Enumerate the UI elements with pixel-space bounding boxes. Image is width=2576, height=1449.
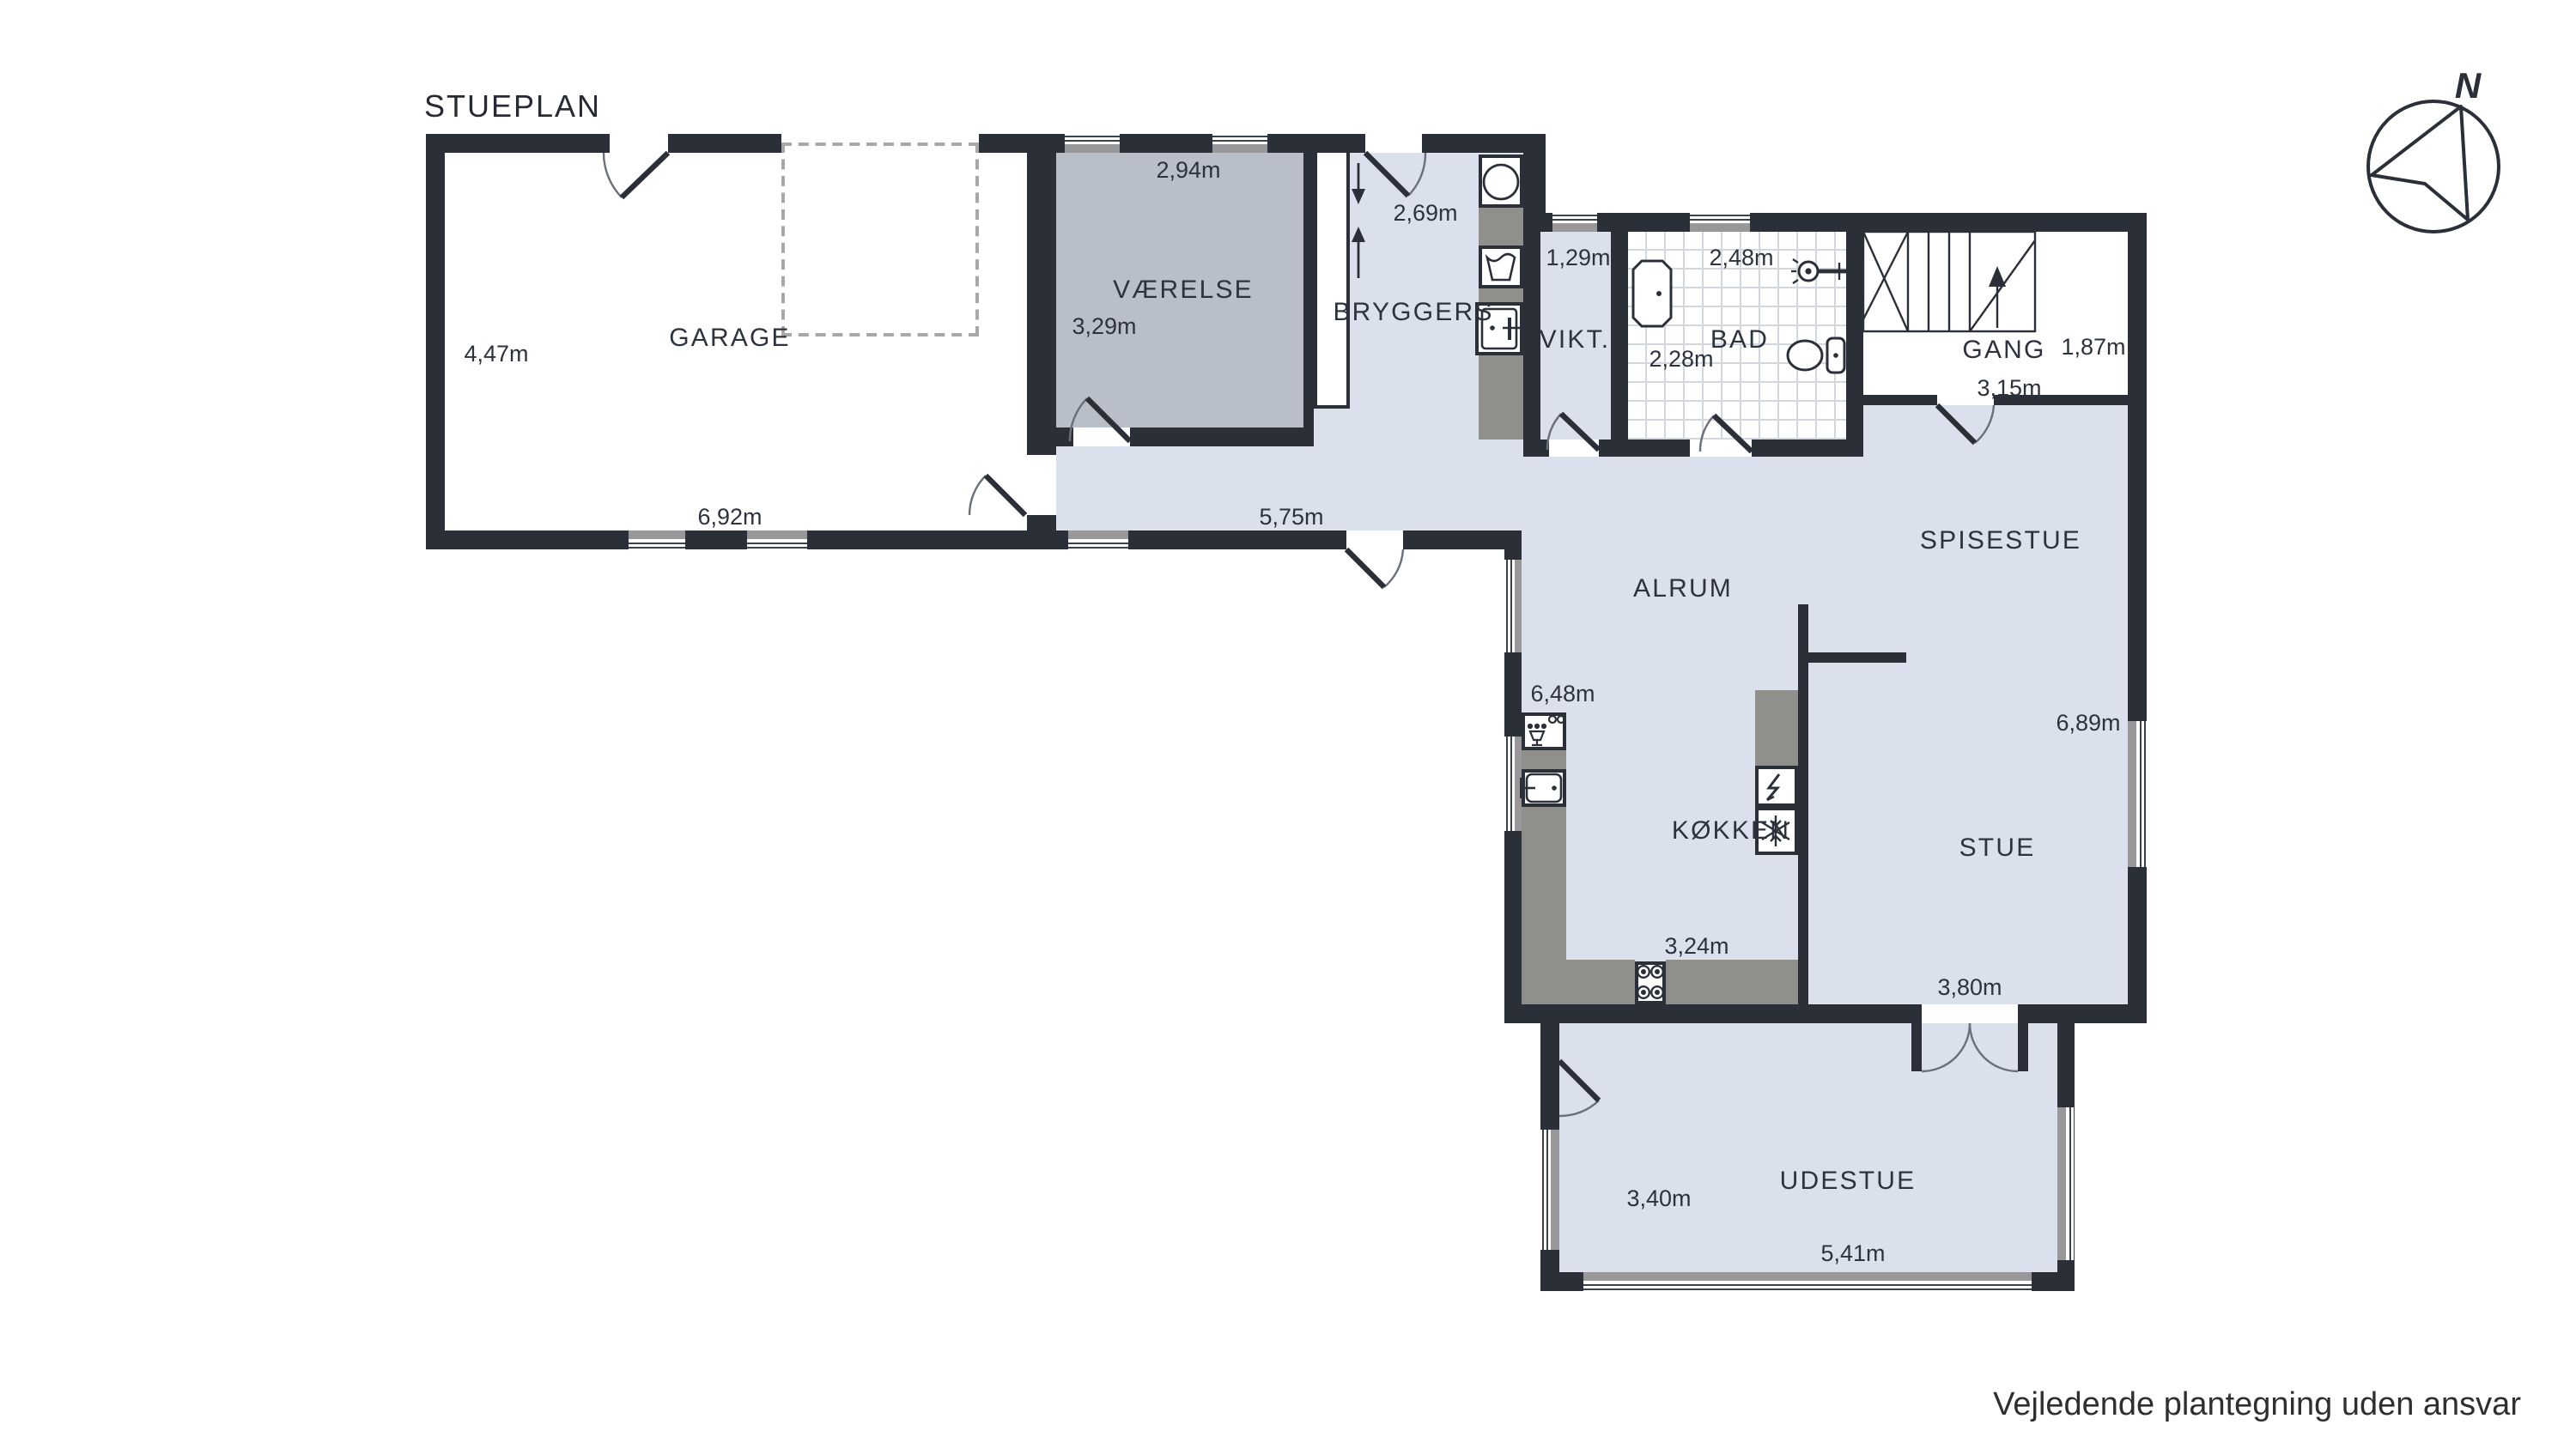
basement-stair-niche xyxy=(1314,153,1350,409)
wall-main-south xyxy=(1504,1004,2147,1023)
door-gap-vaerelse xyxy=(1073,427,1130,446)
window-vikt xyxy=(1552,213,1597,232)
room-label-alrum: ALRUM xyxy=(1633,574,1733,603)
door-gap-bryggers xyxy=(1365,134,1422,153)
wall-stub-spisestue-stue xyxy=(1808,652,1906,663)
dim-bad-height: 2,28m xyxy=(1649,346,1713,372)
window-hall xyxy=(1068,530,1128,549)
wall-vikt-right xyxy=(1611,232,1628,457)
dim-udestue-height: 3,40m xyxy=(1626,1185,1691,1211)
wall-east xyxy=(2128,213,2147,1023)
wall-koekken-stue xyxy=(1798,604,1808,1004)
dim-vaerelse-width: 2,94m xyxy=(1156,157,1220,183)
room-label-stue: STUE xyxy=(1959,834,2036,863)
dim-bryggers-width: 2,69m xyxy=(1393,200,1457,226)
bryggers-counter-3 xyxy=(1479,355,1523,440)
dim-hall-width: 5,75m xyxy=(1259,504,1323,530)
kitchen-sink xyxy=(1522,769,1566,807)
room-label-udestue: UDESTUE xyxy=(1780,1167,1917,1196)
dim-gang-height: 1,87m xyxy=(2061,334,2125,360)
dim-vaerelse-height: 3,29m xyxy=(1072,313,1136,339)
koekken-counter-2 xyxy=(1522,807,1566,960)
room-label-garage: GARAGE xyxy=(669,324,791,353)
door-gap-garage-top xyxy=(610,134,668,153)
compass-north-label: N xyxy=(2455,67,2481,108)
page-title: STUEPLAN xyxy=(424,89,601,125)
washing-machine xyxy=(1479,155,1523,208)
dim-gang-width: 3,15m xyxy=(1977,375,2041,401)
disclaimer-text: Vejledende plantegning uden ansvar xyxy=(1993,1387,2521,1425)
wall-bryggers-vikt xyxy=(1523,153,1540,457)
window-koekken-1 xyxy=(1504,560,1522,652)
room-label-bryggers: BRYGGERS xyxy=(1333,298,1493,327)
koekken-counter-4 xyxy=(1666,960,1798,1004)
dim-garage-height: 4,47m xyxy=(464,341,528,367)
window-koekken-2 xyxy=(1504,737,1522,831)
window-garage-2 xyxy=(747,530,807,549)
room-label-gang: GANG xyxy=(1962,336,2045,365)
dim-stue-width: 3,80m xyxy=(1937,974,2002,1000)
window-vaerelse-2 xyxy=(1212,134,1267,153)
floor-spisestue-stue xyxy=(1863,405,2128,1004)
staircase xyxy=(1863,232,2035,331)
floor-bryggers-patch xyxy=(1314,409,1350,446)
garage-door-dashed-area xyxy=(781,142,979,336)
dim-koekken-width: 3,24m xyxy=(1664,933,1728,959)
window-garage-1 xyxy=(629,530,685,549)
dim-bad-width: 2,48m xyxy=(1709,245,1773,270)
window-udestue-south xyxy=(1583,1272,2032,1291)
compass-icon xyxy=(2368,101,2499,232)
koekken-tall-cabinet xyxy=(1755,690,1798,766)
room-label-spisestue: SPISESTUE xyxy=(1920,526,2081,555)
fridge xyxy=(1755,766,1798,807)
wall-bad-right xyxy=(1846,232,1863,457)
door-gap-french xyxy=(1922,1004,2018,1023)
koekken-counter-3 xyxy=(1522,960,1635,1004)
floor-plan: STUEPLAN Vejledende plantegning uden ans… xyxy=(0,0,2576,1449)
window-udestue-west xyxy=(1540,1130,1559,1250)
stove xyxy=(1635,961,1666,1004)
dim-koekken-height: 6,48m xyxy=(1530,681,1595,706)
dishwasher xyxy=(1522,712,1566,750)
door-gap-garage-side xyxy=(1027,455,1056,515)
wall-north-east xyxy=(1528,213,2147,232)
room-label-bad: BAD xyxy=(1710,325,1769,355)
wall-vaerelse-right xyxy=(1303,153,1314,427)
bryggers-counter-1 xyxy=(1479,208,1523,246)
dim-stue-height: 6,89m xyxy=(2056,710,2120,736)
wall-south-corridor xyxy=(426,530,1504,549)
laundry-sink xyxy=(1479,246,1523,288)
dim-vikt-width: 1,29m xyxy=(1546,245,1610,270)
window-stue-east xyxy=(2128,721,2147,867)
koekken-counter-1 xyxy=(1522,749,1566,769)
wall-french-jamb-left xyxy=(1911,1004,1922,1071)
room-label-koekken: KØKKEN xyxy=(1672,816,1790,846)
door-gap-bad xyxy=(1690,440,1752,457)
dim-udestue-width: 5,41m xyxy=(1820,1240,1885,1266)
wall-french-jamb-right xyxy=(2018,1004,2028,1071)
wall-garage-left xyxy=(426,134,445,549)
window-vaerelse-1 xyxy=(1065,134,1120,153)
room-label-vikt: VIKT. xyxy=(1540,325,1611,355)
door-gap-vikt xyxy=(1549,440,1599,457)
window-udestue-east xyxy=(2057,1107,2075,1260)
window-bad xyxy=(1690,213,1750,232)
door-gap-entrance xyxy=(1346,530,1403,549)
dim-garage-width: 6,92m xyxy=(697,504,762,530)
room-label-vaerelse: VÆRELSE xyxy=(1113,276,1254,305)
